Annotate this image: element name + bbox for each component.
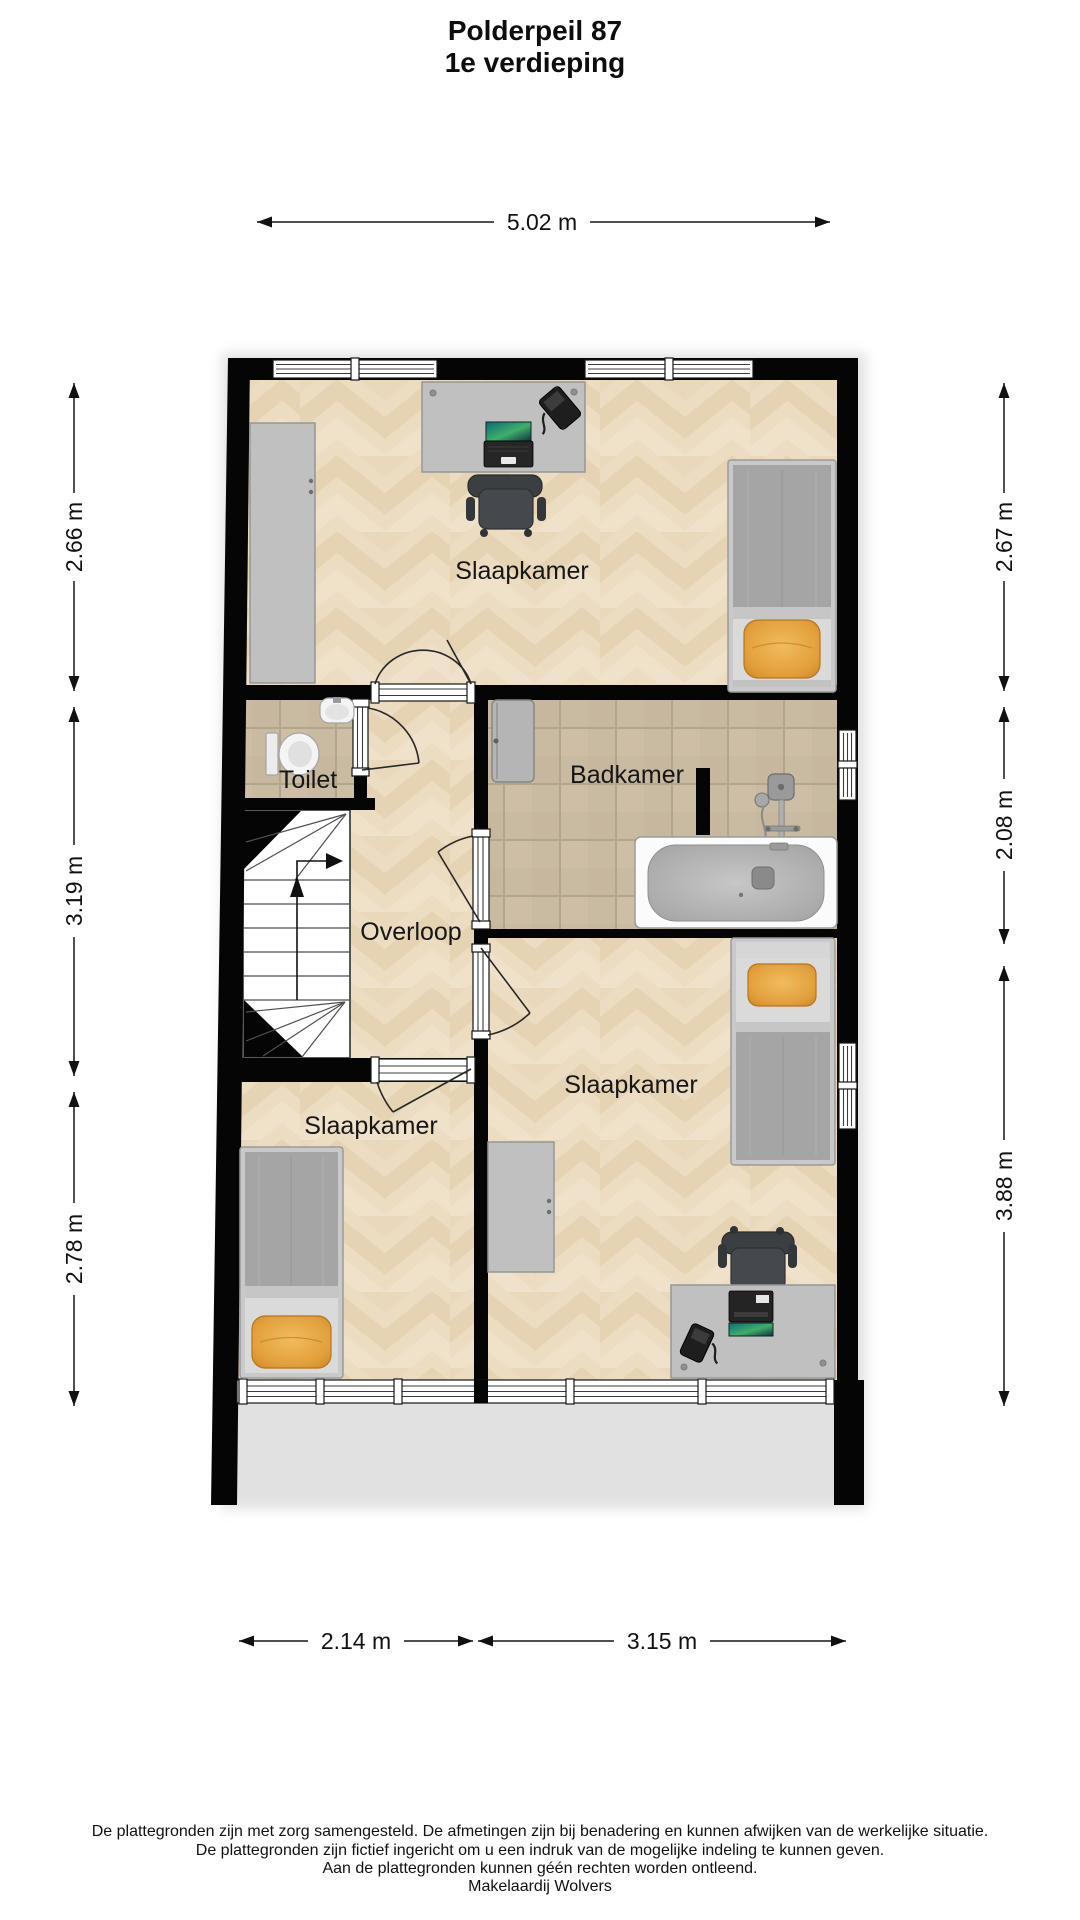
pillow-left — [252, 1316, 331, 1368]
bed-right — [731, 938, 835, 1165]
wall-right — [837, 358, 858, 1380]
dim-right-2-label: 3.88 m — [991, 1151, 1017, 1221]
bed-left — [240, 1147, 343, 1378]
wardrobe-top — [250, 423, 315, 683]
desk-top — [422, 382, 585, 472]
cabinet-right — [488, 1142, 554, 1272]
bed-top — [728, 460, 836, 692]
dim-top-label: 5.02 m — [507, 209, 577, 235]
desk-right — [671, 1285, 835, 1378]
dim-bottom-1-label: 3.15 m — [627, 1628, 697, 1654]
label-toilet: Toilet — [279, 766, 337, 794]
stairs — [243, 810, 350, 1058]
dimension-right-2: 3.88 m — [991, 966, 1017, 1406]
footer-line1: De plattegronden zijn met zorg samengest… — [92, 1823, 989, 1840]
dimension-bottom-0: 2.14 m — [239, 1628, 473, 1654]
dimension-top: 5.02 m — [257, 209, 830, 235]
laptop-top — [484, 422, 533, 467]
dim-left-2-label: 2.78 m — [61, 1214, 87, 1284]
dimension-left-2: 2.78 m — [61, 1092, 87, 1406]
floorplan-page: Polderpeil 87 1e verdieping — [0, 0, 1080, 1920]
label-bathroom: Badkamer — [570, 761, 684, 789]
window-bathroom-right — [838, 730, 857, 800]
dimension-right-0: 2.67 m — [991, 383, 1017, 691]
laptop-right — [729, 1291, 773, 1336]
pillow-right — [748, 964, 816, 1006]
dimension-right-1: 2.08 m — [991, 707, 1017, 944]
title-line1: Polderpeil 87 — [448, 15, 622, 46]
label-landing: Overloop — [360, 918, 461, 946]
wall-shower-stub — [696, 768, 710, 835]
dimension-left-1: 3.19 m — [61, 707, 87, 1076]
pillow-top — [744, 620, 820, 678]
wall-bedrooms-divider — [474, 1082, 488, 1403]
footer-disclaimer: De plattegronden zijn met zorg samengest… — [92, 1823, 989, 1895]
window-top-left — [273, 358, 437, 380]
wall-bathroom-south — [488, 929, 837, 938]
floorplan-canvas: Polderpeil 87 1e verdieping — [0, 0, 1080, 1920]
label-bedroom-right: Slaapkamer — [564, 1071, 697, 1099]
sink — [320, 697, 354, 723]
page-title: Polderpeil 87 1e verdieping — [445, 15, 626, 78]
dim-right-1-label: 2.08 m — [991, 790, 1017, 860]
footer-line4: Makelaardij Wolvers — [468, 1878, 612, 1895]
label-bedroom-left: Slaapkamer — [304, 1112, 437, 1140]
bathtub — [635, 837, 837, 928]
footer-line3: Aan de plattegronden kunnen géén rechten… — [322, 1860, 757, 1877]
dimension-bottom-1: 3.15 m — [478, 1628, 846, 1654]
bathroom-cabinet — [492, 700, 534, 782]
title-line2: 1e verdieping — [445, 47, 626, 78]
wall-toilet-south — [235, 798, 375, 810]
wall-landing-east-1 — [474, 698, 488, 833]
wall-right-stub — [834, 1380, 864, 1505]
window-bottom-band — [237, 1379, 834, 1404]
dimension-left-0: 2.66 m — [61, 383, 87, 691]
dim-bottom-0-label: 2.14 m — [321, 1628, 391, 1654]
dim-left-1-label: 3.19 m — [61, 856, 87, 926]
dim-right-0-label: 2.67 m — [991, 502, 1017, 572]
window-top-right — [585, 358, 753, 380]
footer-line2: De plattegronden zijn fictief ingericht … — [196, 1842, 884, 1859]
dim-left-0-label: 2.66 m — [61, 502, 87, 572]
label-bedroom-top: Slaapkamer — [455, 557, 588, 585]
window-bedroom-right — [838, 1043, 857, 1129]
